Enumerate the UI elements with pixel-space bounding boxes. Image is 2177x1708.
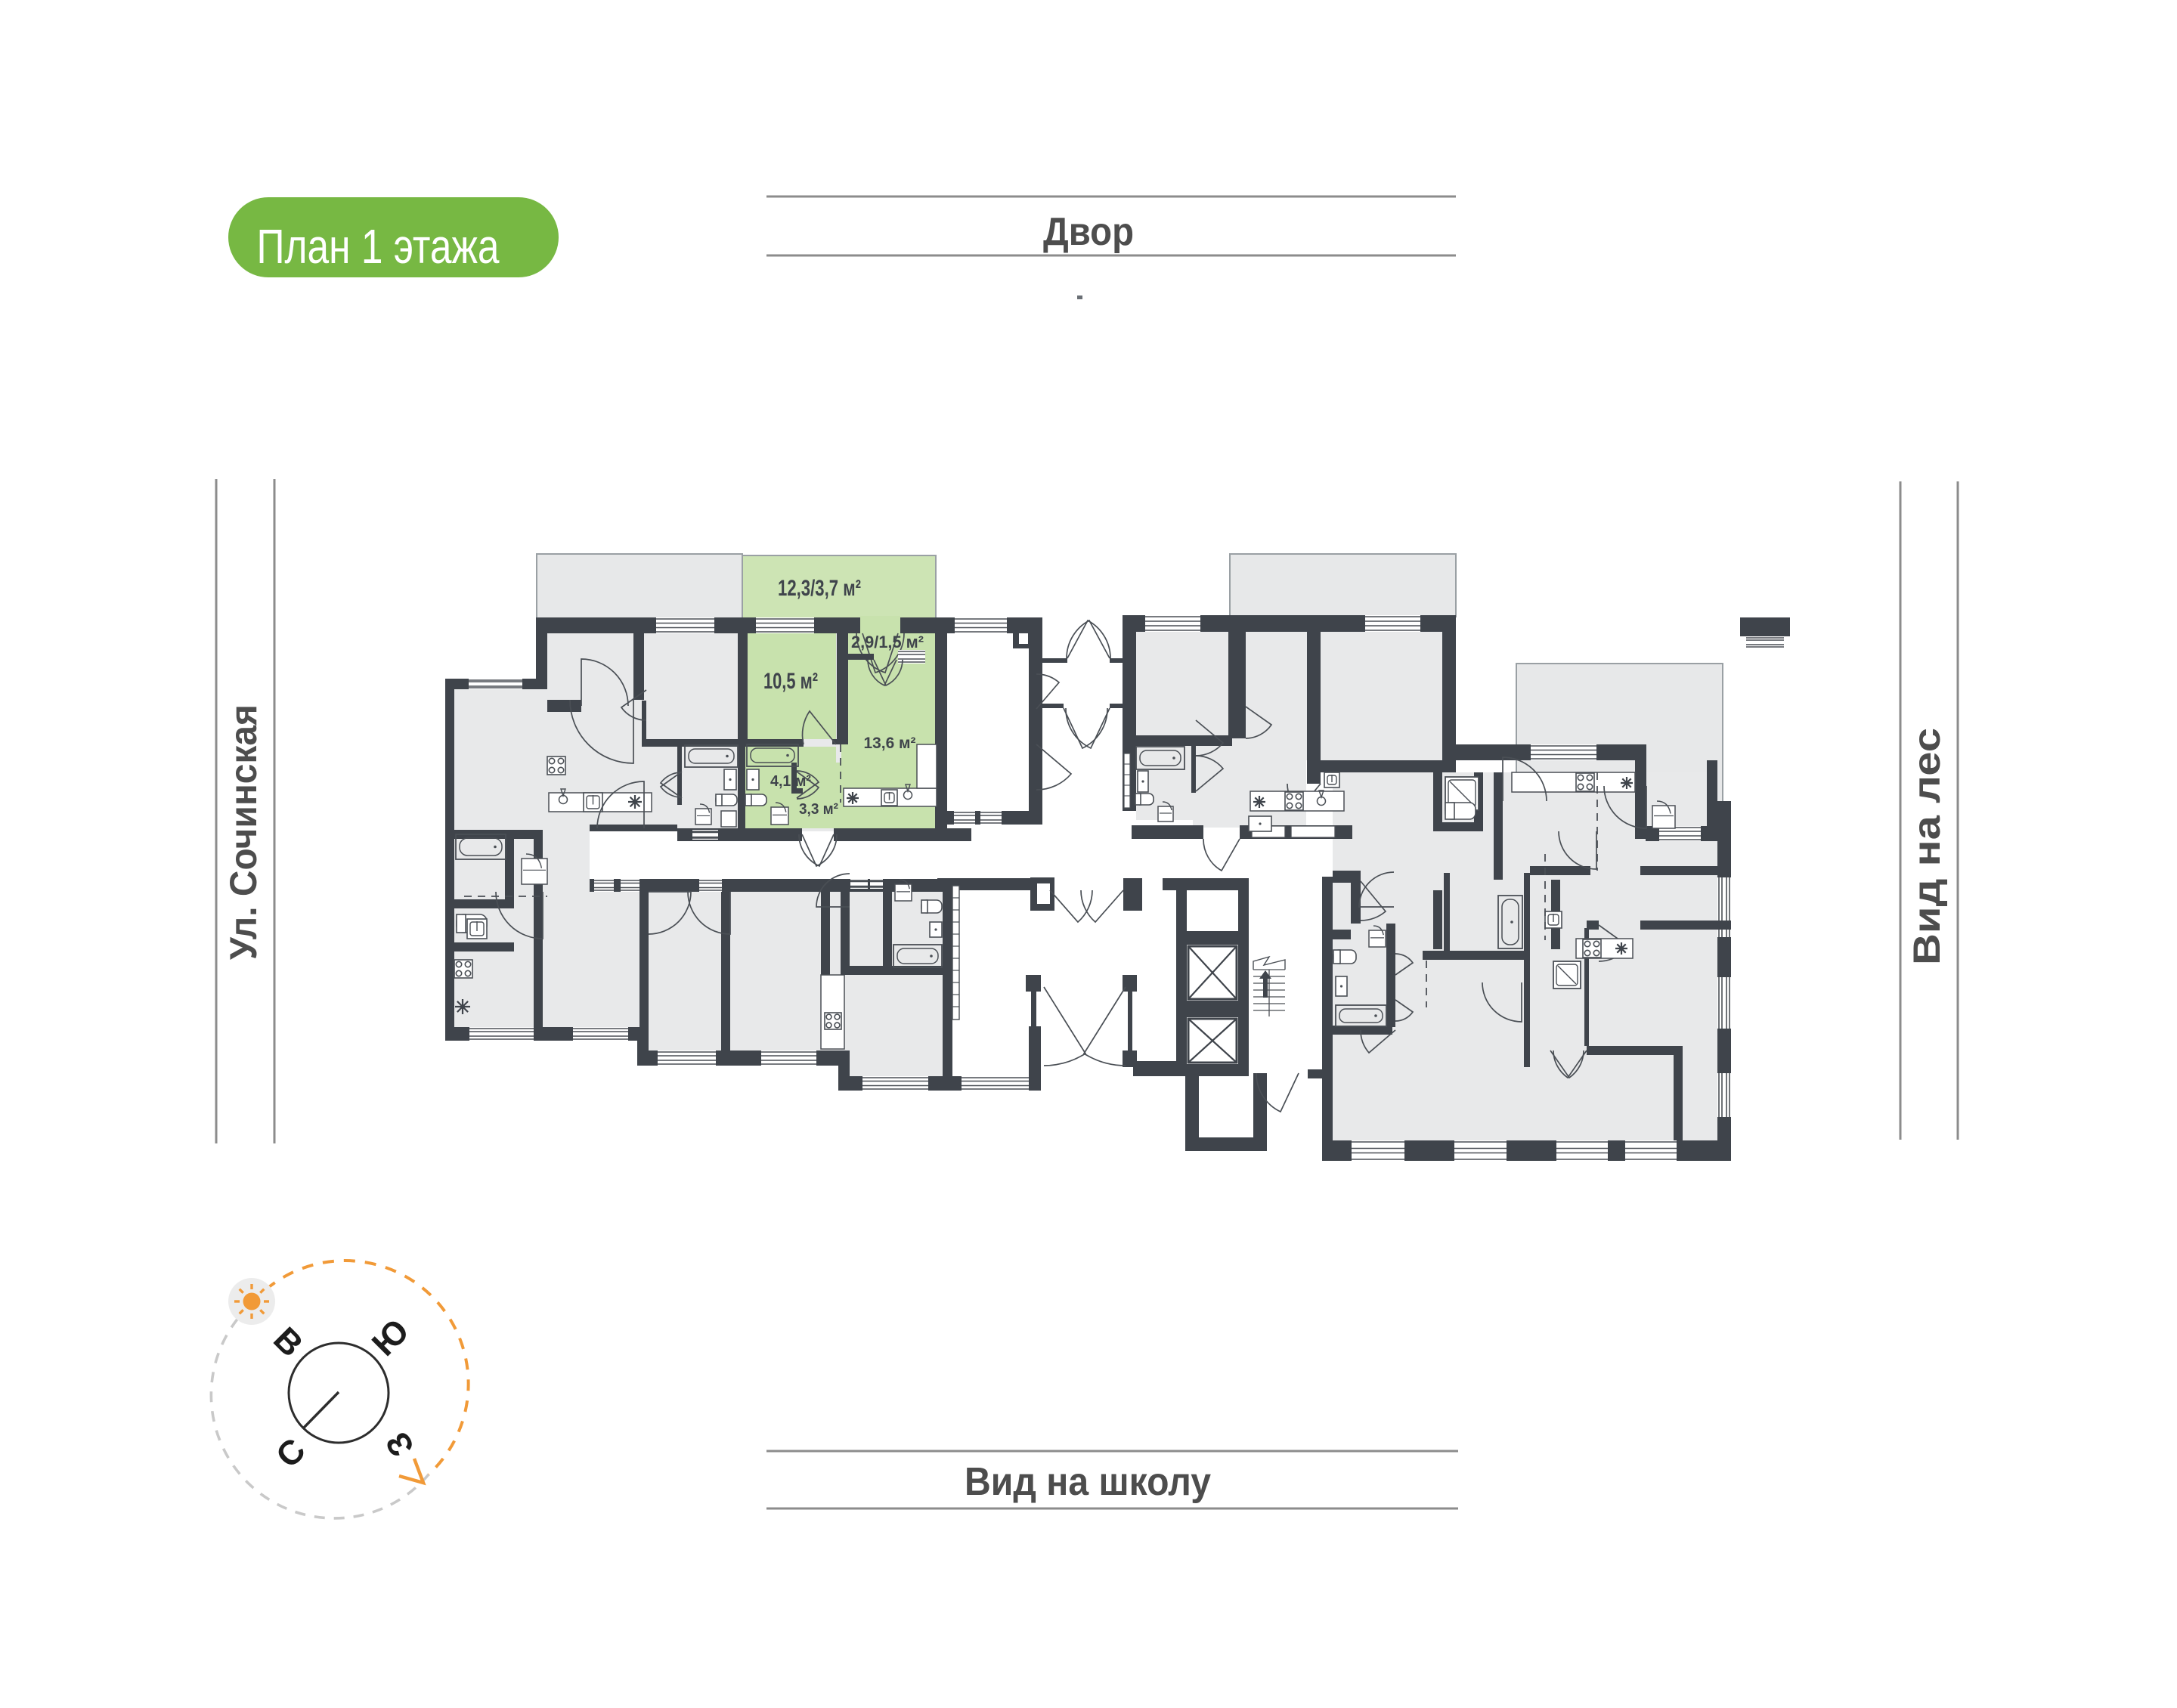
svg-text:Вид на лес: Вид на лес xyxy=(1906,728,1948,965)
svg-text:4,1 м²: 4,1 м² xyxy=(770,773,811,790)
svg-text:Вид на школу: Вид на школу xyxy=(965,1460,1211,1504)
svg-text:10,5 м²: 10,5 м² xyxy=(763,669,818,694)
svg-text:3,3 м²: 3,3 м² xyxy=(799,801,838,818)
svg-text:12,3/3,7 м²: 12,3/3,7 м² xyxy=(778,576,861,601)
svg-text:Ул. Сочинская: Ул. Сочинская xyxy=(222,704,265,960)
svg-text:Двор: Двор xyxy=(1043,210,1134,254)
svg-text:2,9/1,5 м²: 2,9/1,5 м² xyxy=(851,633,924,651)
svg-text:13,6 м²: 13,6 м² xyxy=(864,735,916,752)
svg-text:План 1 этажа: План 1 этажа xyxy=(257,219,500,274)
